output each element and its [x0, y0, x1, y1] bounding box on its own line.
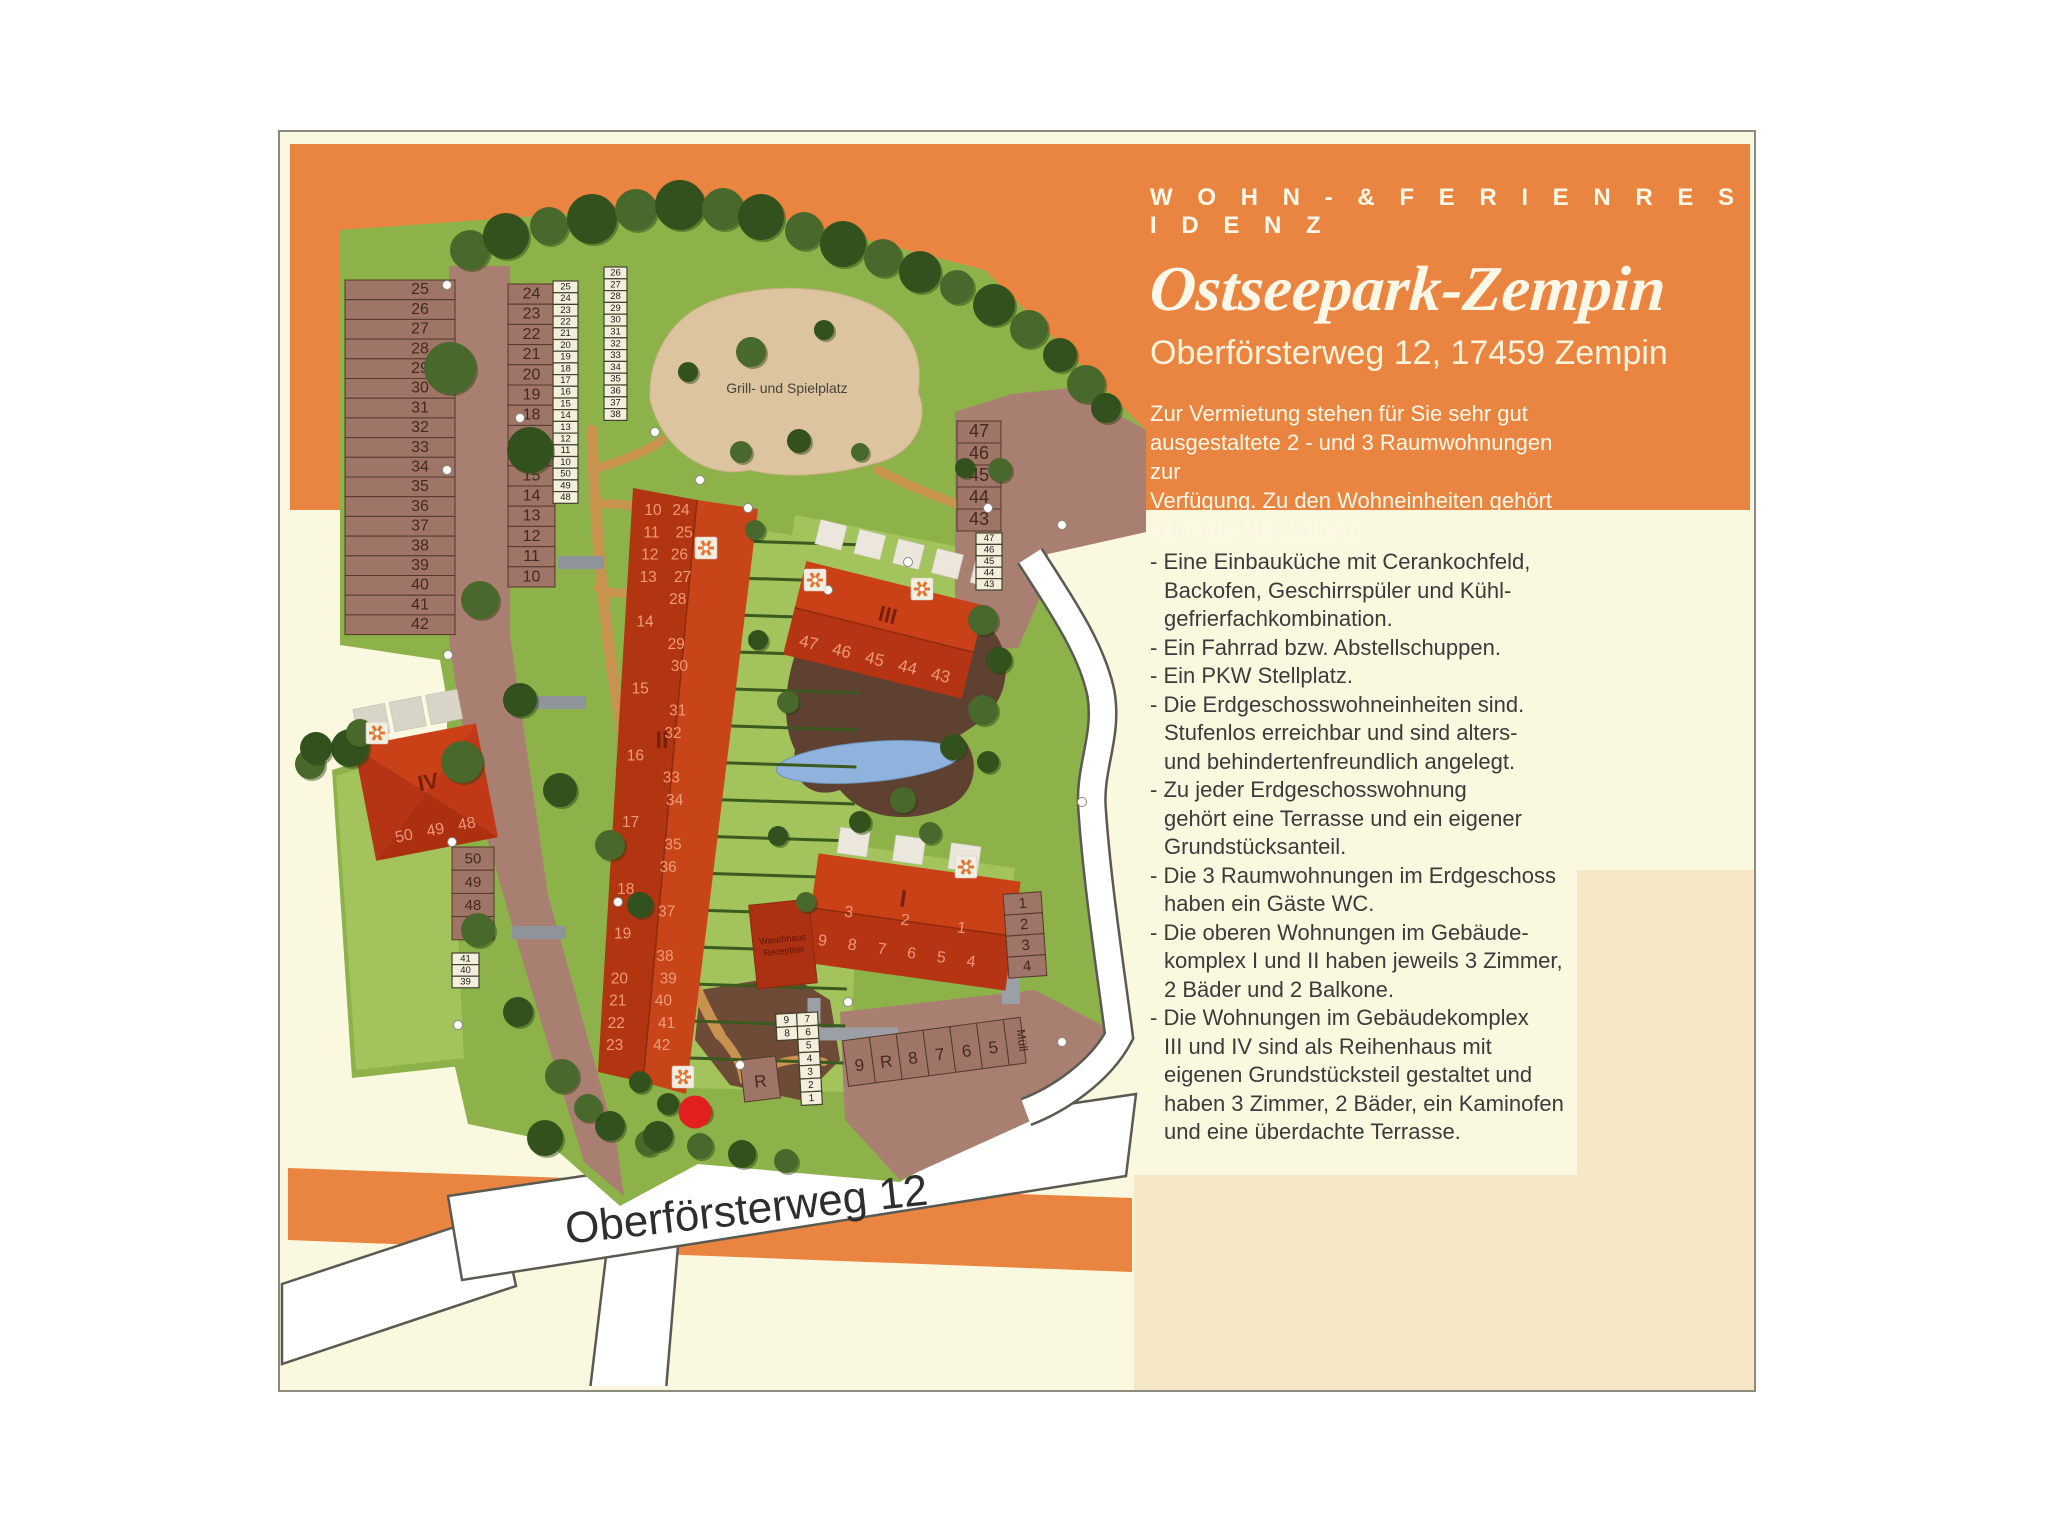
feature-item: - Die oberen Wohnungen im Gebäude- kompl… [1150, 919, 1640, 1005]
feature-item: - Die 3 Raumwohnungen im Erdgeschoss hab… [1150, 862, 1640, 919]
header-text-block: W O H N - & F E R I E N R E S I D E N Z … [1150, 184, 1760, 544]
feature-item: - Ein PKW Stellplatz. [1150, 662, 1640, 691]
feature-item: - Die Wohnungen im Gebäudekomplex III un… [1150, 1004, 1640, 1147]
page: Grill- und Spielplatz II1024112512261327… [0, 0, 2048, 1538]
header-address: Oberförsterweg 12, 17459 Zempin [1150, 334, 1760, 373]
feature-item: - Ein Fahrrad bzw. Abstellschuppen. [1150, 634, 1640, 663]
features-list: - Eine Einbauküche mit Cerankochfeld, Ba… [1150, 548, 1640, 1147]
feature-item: - Eine Einbauküche mit Cerankochfeld, Ba… [1150, 548, 1640, 634]
beige-panel-bottom [1134, 1175, 1754, 1390]
feature-item: - Die Erdgeschosswohneinheiten sind. Stu… [1150, 691, 1640, 777]
page-title: Ostseepark-Zempin [1148, 254, 1763, 324]
header-eyebrow: W O H N - & F E R I E N R E S I D E N Z [1150, 184, 1760, 240]
header-intro: Zur Vermietung stehen für Sie sehr gut a… [1150, 399, 1570, 544]
feature-item: - Zu jeder Erdgeschosswohnung gehört ein… [1150, 776, 1640, 862]
